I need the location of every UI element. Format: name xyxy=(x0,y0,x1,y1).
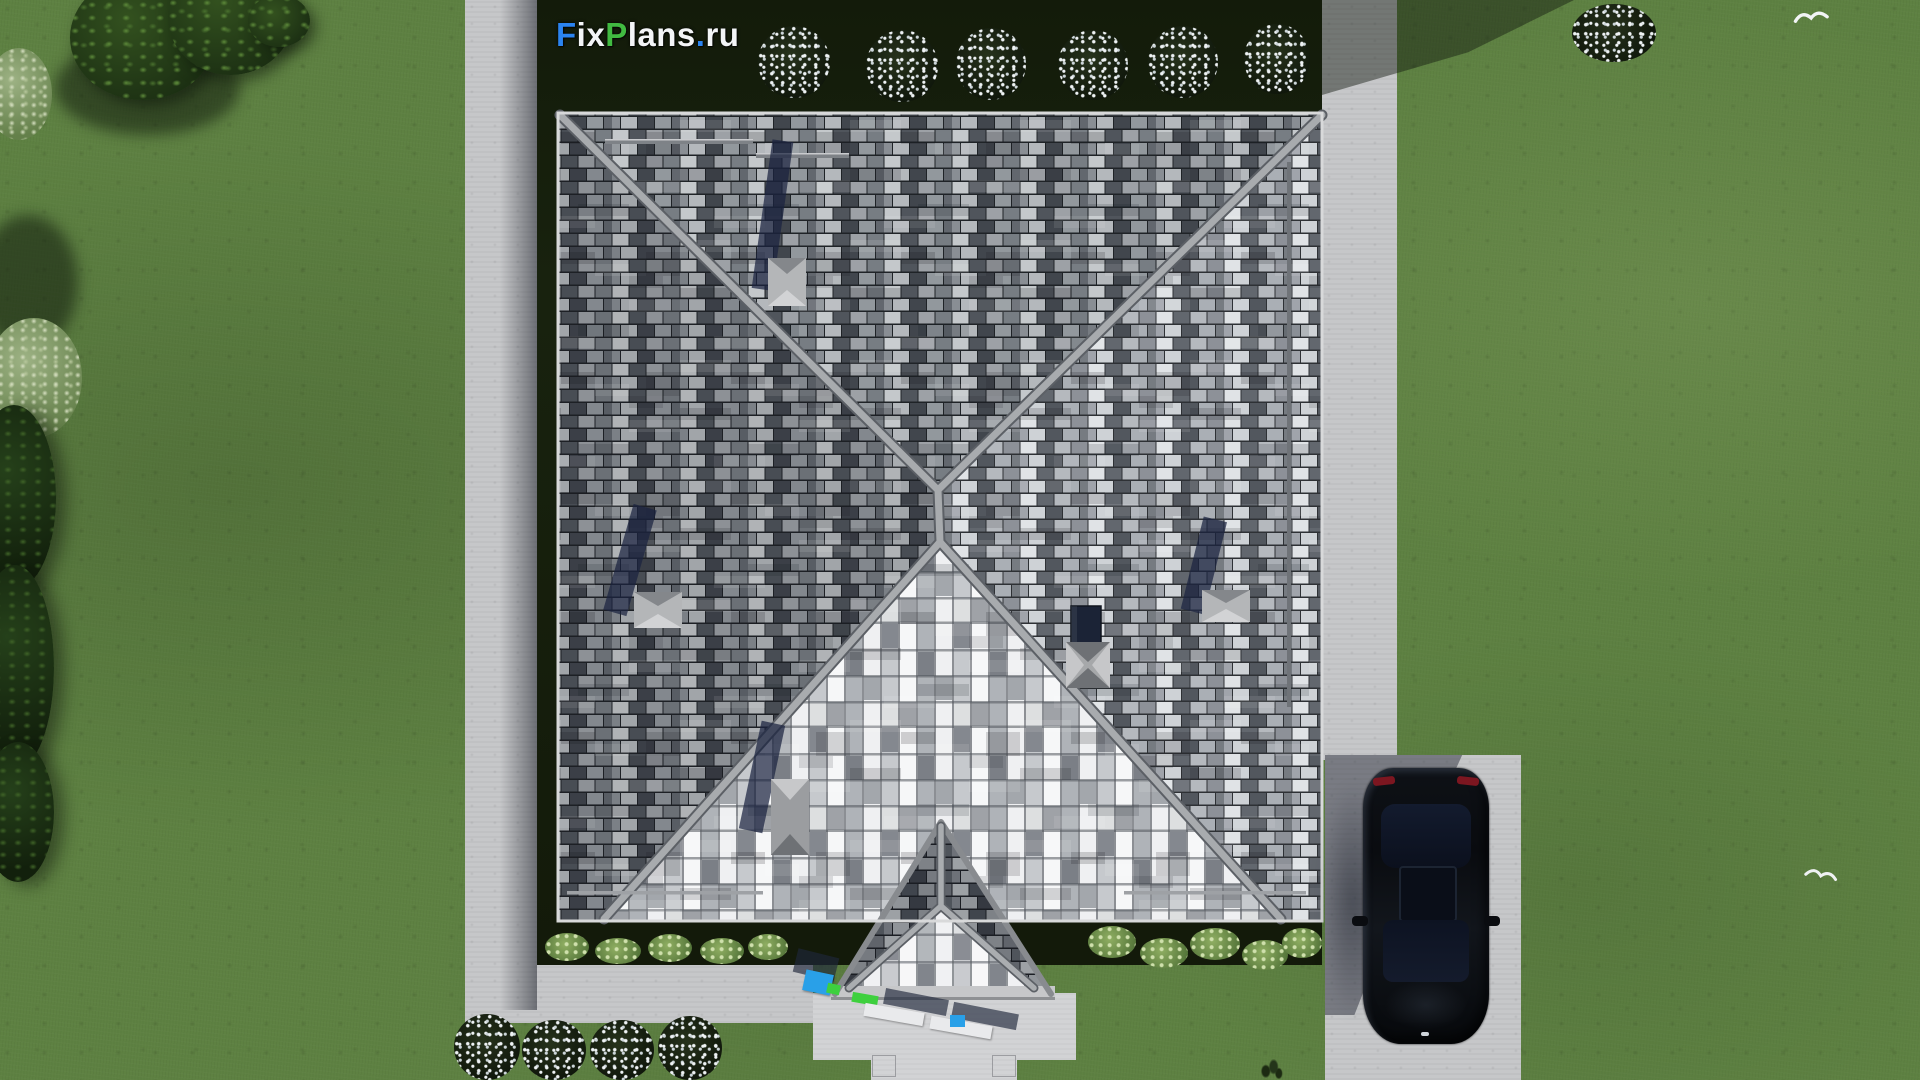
house-shadow-left-path xyxy=(500,0,537,1010)
flower-bush xyxy=(522,1020,586,1080)
flower-bush xyxy=(1244,24,1310,94)
garden-hedge xyxy=(537,0,1322,965)
shrub xyxy=(648,934,692,962)
watermark-letter: F xyxy=(556,16,577,53)
shrub xyxy=(700,938,744,964)
flower-bush xyxy=(454,1014,520,1080)
small-plant xyxy=(1258,1058,1284,1080)
mirror-left xyxy=(1352,916,1368,926)
shrub xyxy=(595,938,641,964)
walkway-right xyxy=(1322,0,1397,760)
flower-bush xyxy=(590,1020,654,1080)
watermark-letter: ix xyxy=(577,16,606,53)
step-marker xyxy=(993,1056,1015,1076)
windshield xyxy=(1383,920,1469,982)
watermark-logo: FixPlans.ru xyxy=(556,16,739,54)
flower-bush xyxy=(658,1016,722,1080)
flower-bush xyxy=(1572,4,1656,62)
watermark-letter: . xyxy=(696,16,706,53)
shrub xyxy=(1242,940,1288,970)
shrub xyxy=(545,933,589,961)
black-car-top-view xyxy=(1363,768,1489,1044)
rear-window xyxy=(1381,804,1471,868)
flower-bush xyxy=(758,26,830,98)
flower-bush xyxy=(1148,26,1218,98)
watermark-letter: P xyxy=(605,16,628,53)
front-badge xyxy=(1421,1032,1429,1036)
step-marker xyxy=(873,1056,895,1076)
watermark-letter: lans xyxy=(628,16,696,53)
shrub xyxy=(1140,938,1188,968)
flower-bush xyxy=(956,28,1026,100)
flower-bush xyxy=(866,30,938,102)
watermark-letter: ru xyxy=(705,16,739,53)
hood-highlight xyxy=(1385,980,1467,1030)
shrub xyxy=(1190,928,1240,960)
flower-bush xyxy=(1058,30,1128,100)
shrub xyxy=(1088,926,1136,958)
blue-planter xyxy=(950,1015,965,1027)
mirror-right xyxy=(1484,916,1500,926)
aerial-house-render: FixPlans.ru xyxy=(0,0,1920,1080)
sunroof xyxy=(1399,866,1457,922)
shrub xyxy=(1282,928,1322,958)
shrub xyxy=(748,934,788,960)
